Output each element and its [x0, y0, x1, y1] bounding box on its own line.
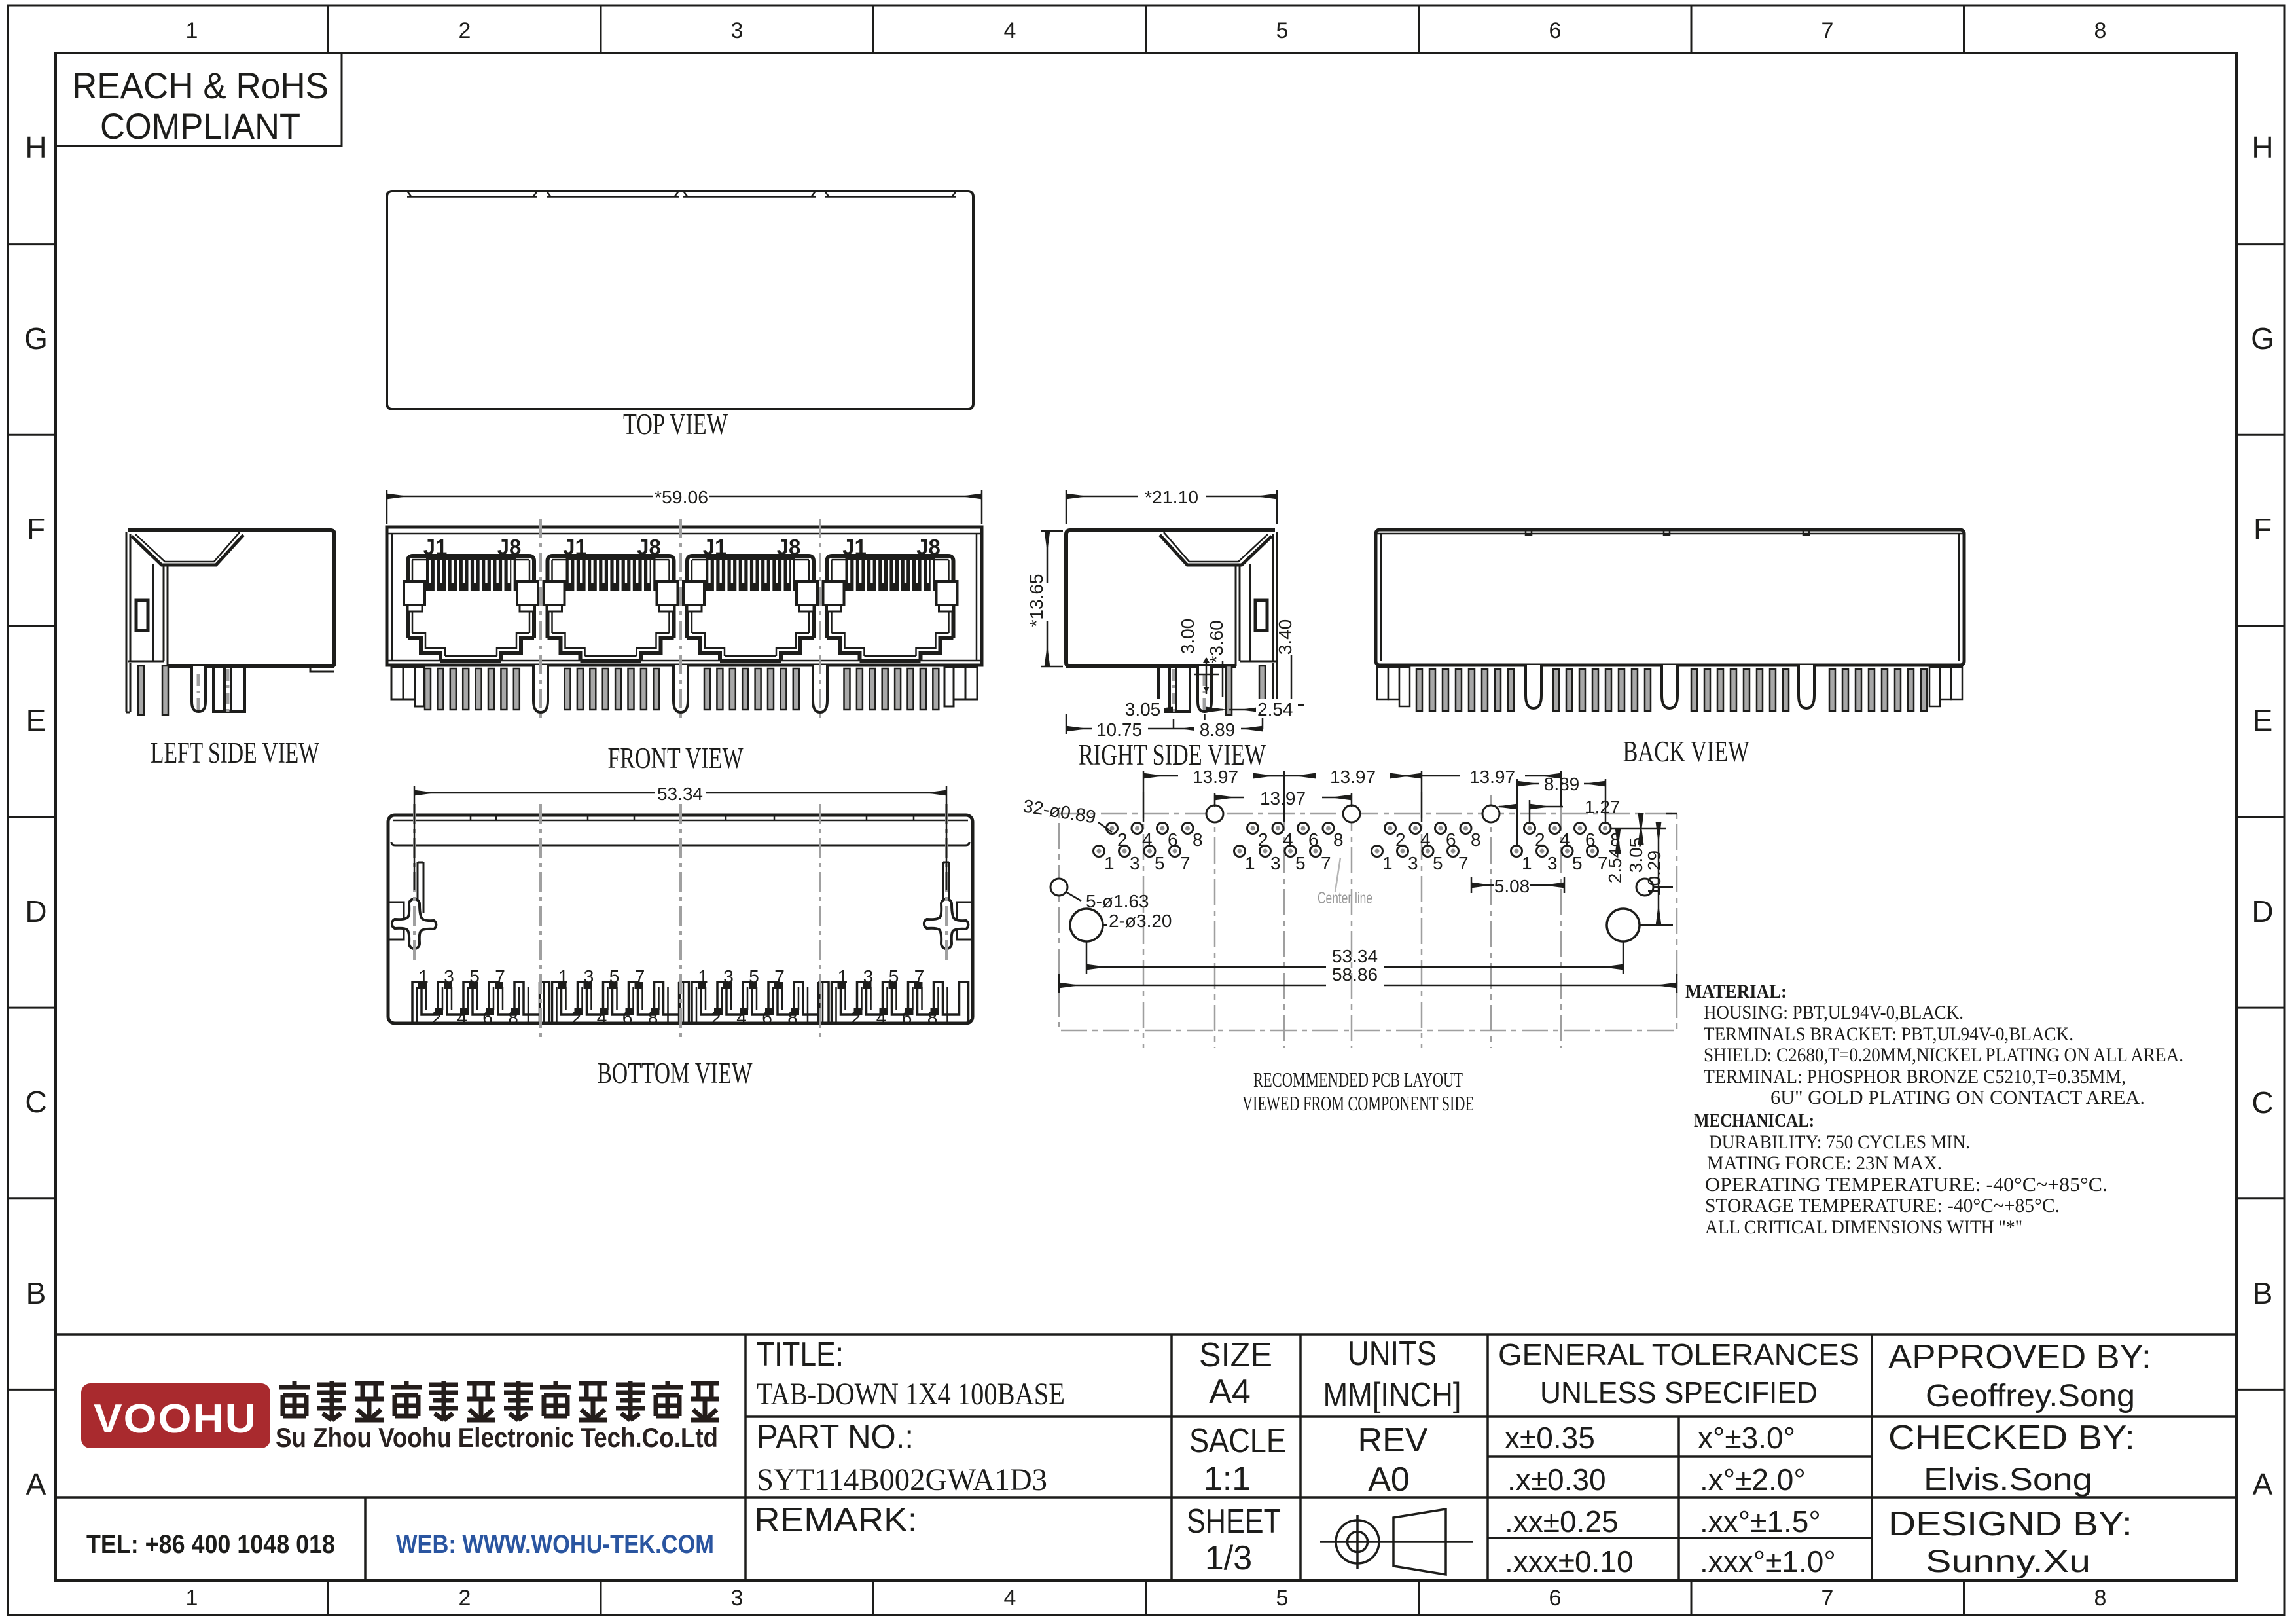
svg-text:OPERATING TEMPERATURE: -40°C~+: OPERATING TEMPERATURE: -40°C~+85°C.	[1705, 1174, 2108, 1195]
svg-text:HOUSING: PBT,UL94V-0,BLACK.: HOUSING: PBT,UL94V-0,BLACK.	[1704, 1002, 1964, 1023]
svg-text:C: C	[2251, 1085, 2273, 1120]
svg-text:2: 2	[459, 1586, 471, 1611]
svg-text:10.29: 10.29	[1644, 850, 1664, 896]
svg-text:A0: A0	[1368, 1461, 1410, 1499]
svg-text:8: 8	[2094, 1586, 2107, 1611]
svg-text:G: G	[24, 321, 48, 356]
svg-text:VIEWED FROM COMPONENT SIDE: VIEWED FROM COMPONENT SIDE	[1242, 1091, 1474, 1115]
svg-text:53.34: 53.34	[657, 784, 703, 804]
svg-text:x°±3.0°: x°±3.0°	[1698, 1421, 1795, 1455]
svg-text:A: A	[2253, 1467, 2273, 1501]
svg-text:REV: REV	[1358, 1421, 1428, 1459]
svg-text:5: 5	[1276, 18, 1289, 43]
svg-text:TEL: +86 400 1048 018: TEL: +86 400 1048 018	[86, 1530, 335, 1559]
svg-text:3: 3	[731, 1586, 744, 1611]
svg-text:MECHANICAL:: MECHANICAL:	[1694, 1110, 1814, 1131]
svg-text:*3.60: *3.60	[1206, 620, 1227, 663]
svg-text:TERMINALS BRACKET: PBT,UL94V-0: TERMINALS BRACKET: PBT,UL94V-0,BLACK.	[1704, 1023, 2073, 1045]
svg-text:RECOMMENDED PCB LAYOUT: RECOMMENDED PCB LAYOUT	[1253, 1068, 1463, 1091]
svg-text:1: 1	[186, 1586, 198, 1611]
svg-text:F: F	[27, 512, 45, 546]
svg-text:2.54: 2.54	[1257, 699, 1293, 720]
svg-text:C: C	[25, 1085, 46, 1119]
svg-text:3: 3	[731, 18, 744, 43]
svg-text:.xx°±1.5°: .xx°±1.5°	[1700, 1504, 1821, 1539]
svg-text:BOTTOM VIEW: BOTTOM VIEW	[598, 1057, 753, 1089]
svg-text:PART NO.:: PART NO.:	[757, 1418, 914, 1456]
svg-text:MM[INCH]: MM[INCH]	[1323, 1376, 1462, 1414]
svg-text:5.08: 5.08	[1494, 876, 1530, 896]
svg-text:G: G	[2251, 321, 2274, 356]
svg-text:1.27: 1.27	[1585, 797, 1621, 817]
svg-text:32-ø0.89: 32-ø0.89	[1022, 795, 1098, 827]
svg-text:A4: A4	[1209, 1373, 1251, 1411]
svg-text:MATING FORCE: 23N MAX.: MATING FORCE: 23N MAX.	[1707, 1152, 1942, 1174]
svg-text:5: 5	[1276, 1586, 1289, 1611]
svg-text:4: 4	[1004, 1586, 1016, 1611]
svg-text:1: 1	[186, 18, 198, 43]
svg-text:3.40: 3.40	[1275, 619, 1295, 655]
svg-text:REMARK:: REMARK:	[754, 1501, 918, 1539]
svg-text:SIZE: SIZE	[1199, 1336, 1272, 1374]
svg-text:A: A	[26, 1467, 46, 1501]
svg-text:.x°±2.0°: .x°±2.0°	[1700, 1463, 1806, 1497]
svg-text:3.00: 3.00	[1177, 619, 1198, 655]
svg-text:WEB: WWW.WOHU-TEK.COM: WEB: WWW.WOHU-TEK.COM	[396, 1530, 714, 1559]
svg-text:APPROVED BY:: APPROVED BY:	[1888, 1338, 2151, 1376]
svg-text:8.89: 8.89	[1544, 774, 1580, 794]
svg-text:10.75: 10.75	[1096, 720, 1142, 740]
svg-text:*21.10: *21.10	[1145, 487, 1198, 507]
svg-text:D: D	[25, 894, 46, 928]
svg-text:2: 2	[459, 18, 471, 43]
svg-text:2.54: 2.54	[1605, 848, 1625, 884]
svg-text:CHECKED BY:: CHECKED BY:	[1888, 1419, 2135, 1457]
svg-text:VOOHU: VOOHU	[94, 1396, 257, 1442]
svg-text:REACH & RoHS: REACH & RoHS	[72, 65, 329, 106]
svg-text:13.97: 13.97	[1260, 788, 1306, 809]
svg-text:DURABILITY: 750 CYCLES MIN.: DURABILITY: 750 CYCLES MIN.	[1709, 1131, 1970, 1153]
svg-text:TERMINAL: PHOSPHOR BRONZE C521: TERMINAL: PHOSPHOR BRONZE C5210,T=0.35MM…	[1704, 1066, 2126, 1087]
svg-text:1/3: 1/3	[1205, 1539, 1252, 1577]
svg-text:8.89: 8.89	[1200, 720, 1236, 740]
svg-text:E: E	[26, 703, 46, 737]
svg-text:UNITS: UNITS	[1348, 1335, 1437, 1373]
svg-text:.x±0.30: .x±0.30	[1507, 1463, 1606, 1497]
svg-text:6U" GOLD PLATING ON CONTACT AR: 6U" GOLD PLATING ON CONTACT AREA.	[1770, 1087, 2145, 1108]
svg-text:MATERIAL:: MATERIAL:	[1685, 981, 1787, 1002]
svg-text:D: D	[2251, 894, 2273, 928]
svg-text:Elvis.Song: Elvis.Song	[1924, 1463, 2092, 1497]
svg-text:3.05: 3.05	[1125, 699, 1161, 720]
svg-text:Su Zhou Voohu Electronic Tech.: Su Zhou Voohu Electronic Tech.Co.Ltd	[276, 1422, 718, 1453]
svg-text:STORAGE TEMPERATURE: -40°C~+85: STORAGE TEMPERATURE: -40°C~+85°C.	[1705, 1195, 2060, 1216]
svg-text:.xxx±0.10: .xxx±0.10	[1505, 1544, 1634, 1578]
svg-text:Geoffrey.Song: Geoffrey.Song	[1926, 1379, 2135, 1413]
svg-text:6: 6	[1549, 18, 1562, 43]
svg-text:Sunny.Xu: Sunny.Xu	[1926, 1544, 2090, 1579]
svg-text:H: H	[2251, 130, 2273, 164]
svg-text:*59.06: *59.06	[655, 487, 708, 507]
svg-text:SHIELD: C2680,T=0.20MM,NICKEL: SHIELD: C2680,T=0.20MM,NICKEL PLATING ON…	[1704, 1044, 2183, 1066]
svg-text:.xxx°±1.0°: .xxx°±1.0°	[1700, 1544, 1836, 1578]
svg-text:x±0.35: x±0.35	[1505, 1421, 1595, 1455]
svg-text:TOP VIEW: TOP VIEW	[623, 408, 728, 441]
svg-text:13.97: 13.97	[1193, 767, 1238, 787]
svg-text:B: B	[2253, 1276, 2273, 1310]
svg-text:SACLE: SACLE	[1189, 1422, 1286, 1460]
svg-text:FRONT VIEW: FRONT VIEW	[608, 742, 744, 775]
svg-text:58.86: 58.86	[1332, 964, 1378, 985]
svg-text:DESIGND BY:: DESIGND BY:	[1888, 1505, 2132, 1543]
svg-text:TITLE:: TITLE:	[757, 1336, 844, 1374]
svg-text:8: 8	[2094, 18, 2107, 43]
svg-text:B: B	[26, 1276, 46, 1310]
svg-text:H: H	[25, 130, 46, 164]
svg-text:*13.65: *13.65	[1026, 574, 1047, 627]
svg-text:Center line: Center line	[1318, 889, 1372, 907]
svg-text:6: 6	[1549, 1586, 1562, 1611]
svg-text:2-ø3.20: 2-ø3.20	[1109, 911, 1172, 931]
svg-text:1:1: 1:1	[1204, 1460, 1251, 1498]
svg-text:COMPLIANT: COMPLIANT	[100, 105, 300, 147]
svg-text:7: 7	[1821, 18, 1834, 43]
svg-text:13.97: 13.97	[1330, 767, 1376, 787]
svg-text:13.97: 13.97	[1469, 767, 1515, 787]
svg-text:SYT114B002GWA1D3: SYT114B002GWA1D3	[757, 1463, 1047, 1497]
svg-text:3.05: 3.05	[1626, 837, 1646, 873]
svg-text:ALL CRITICAL DIMENSIONS WITH ": ALL CRITICAL DIMENSIONS WITH "*"	[1705, 1216, 2022, 1238]
svg-text:BACK VIEW: BACK VIEW	[1623, 735, 1749, 768]
svg-text:5-ø1.63: 5-ø1.63	[1086, 891, 1149, 911]
svg-text:SHEET: SHEET	[1187, 1503, 1281, 1541]
svg-text:53.34: 53.34	[1332, 946, 1378, 966]
svg-text:TAB-DOWN 1X4 100BASE: TAB-DOWN 1X4 100BASE	[757, 1377, 1065, 1412]
svg-text:UNLESS SPECIFIED: UNLESS SPECIFIED	[1540, 1376, 1818, 1410]
svg-text:.xx±0.25: .xx±0.25	[1505, 1504, 1619, 1539]
svg-text:LEFT SIDE VIEW: LEFT SIDE VIEW	[151, 737, 319, 769]
svg-text:GENERAL TOLERANCES: GENERAL TOLERANCES	[1498, 1338, 1859, 1372]
svg-text:F: F	[2253, 512, 2272, 546]
svg-text:7: 7	[1821, 1586, 1834, 1611]
svg-text:E: E	[2253, 703, 2273, 737]
svg-text:4: 4	[1004, 18, 1016, 43]
